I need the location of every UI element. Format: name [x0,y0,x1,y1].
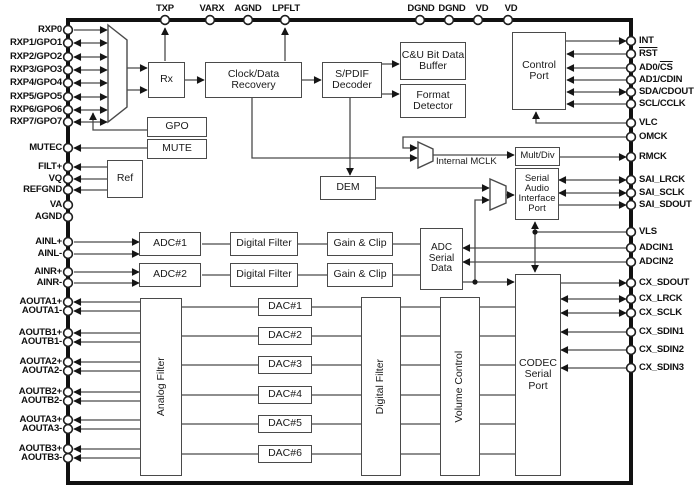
pin-label-agnd-top: AGND [234,4,261,14]
block-serial-audio-interface-port: Serial Audio Interface Port [515,168,559,220]
pin-label-sai-sclk: SAI_SCLK [639,188,684,198]
block-dac5: DAC#5 [258,415,312,433]
pin-label-ainr-minus: AINR- [2,278,62,288]
pin-label-vlc: VLC [639,118,657,128]
dac-digital-filter-label: Digital Filter [375,359,386,414]
pin-label-agnd-left: AGND [2,212,62,222]
block-control-port: Control Port [512,32,566,110]
block-diagram: Rx Clock/Data Recovery S/PDIF Decoder C&… [0,0,700,489]
pin-label-cx-sdin3: CX_SDIN3 [639,363,684,373]
block-dac6: DAC#6 [258,445,312,463]
pin-label-va: VA [2,200,62,210]
pin-label-omck: OMCK [639,132,667,142]
pin-label-rst: RST [639,49,657,59]
pin-label-rxp0: RXP0 [2,25,62,35]
block-dac1: DAC#1 [258,298,312,316]
pin-label-rxp7: RXP7/GPO7 [2,117,62,127]
pin-label-aoutb1-minus: AOUTB1- [2,337,62,347]
pin-label-rxp1: RXP1/GPO1 [2,38,62,48]
pin-label-ainl-plus: AINL+ [2,237,62,247]
pin-label-vls: VLS [639,227,657,237]
pin-label-int: INT [639,36,654,46]
pin-label-vd2: VD [505,4,518,14]
pin-label-mutec: MUTEC [2,143,62,153]
pin-label-cx-lrck: CX_LRCK [639,294,682,304]
pin-label-rxp2: RXP2/GPO2 [2,52,62,62]
volume-control-label: Volume Control [454,351,465,423]
pin-label-aoutb2-minus: AOUTB2- [2,396,62,406]
cs-overline: CS [660,62,673,73]
block-dac-digital-filter: Digital Filter [361,297,401,476]
pin-label-scl-cclk: SCL/CCLK [639,99,685,109]
pin-label-ad0-cs: AD0/CS [639,63,673,73]
pin-label-vd1: VD [476,4,489,14]
pin-label-cx-sdout: CX_SDOUT [639,278,689,288]
pin-label-cx-sdin1: CX_SDIN1 [639,327,684,337]
pin-label-aoutb3-minus: AOUTB3- [2,453,62,463]
block-cu-bit-data-buffer: C&U Bit Data Buffer [400,42,466,80]
pin-label-rxp4: RXP4/GPO4 [2,78,62,88]
block-gpo: GPO [147,117,207,137]
ad0-text: AD0/ [639,62,660,73]
pin-label-adcin2: ADCIN2 [639,257,673,267]
block-gain-clip-2: Gain & Clip [327,263,393,287]
pin-label-rxp3: RXP3/GPO3 [2,65,62,75]
rxp-mux [108,25,127,122]
pin-label-cx-sclk: CX_SCLK [639,308,682,318]
rst-overline: RST [639,48,657,59]
pin-label-lpflt: LPFLT [272,4,300,14]
pin-label-refgnd: REFGND [2,185,62,195]
pin-label-txp: TXP [156,4,174,14]
pin-label-dgnd1: DGND [407,4,434,14]
block-dem: DEM [320,176,376,200]
pin-label-ainl-minus: AINL- [2,249,62,259]
pin-label-ad1-cdin: AD1/CDIN [639,75,682,85]
block-dac4: DAC#4 [258,386,312,404]
pin-label-ainr-plus: AINR+ [2,267,62,277]
block-digital-filter-adc1: Digital Filter [230,232,298,256]
pin-label-rxp5: RXP5/GPO5 [2,92,62,102]
block-volume-control: Volume Control [440,297,480,476]
block-mute: MUTE [147,139,207,159]
block-spdif-decoder: S/PDIF Decoder [322,62,382,98]
pin-label-sai-lrck: SAI_LRCK [639,175,685,185]
analog-filter-label: Analog Filter [155,358,166,417]
pin-label-sai-sdout: SAI_SDOUT [639,200,692,210]
label-internal-mclk: Internal MCLK [436,157,516,167]
pin-label-sda-cdout: SDA/CDOUT [639,87,694,97]
pin-label-filt: FILT+ [2,162,62,172]
pin-label-rxp6: RXP6/GPO6 [2,105,62,115]
block-adc2: ADC#2 [139,263,201,287]
block-analog-filter: Analog Filter [140,298,182,476]
pin-label-varx: VARX [200,4,225,14]
block-mult-div: Mult/Div [515,147,560,166]
pin-label-aouta3-minus: AOUTA3- [2,424,62,434]
block-rx: Rx [148,62,185,98]
block-clock-data-recovery: Clock/Data Recovery [205,62,302,98]
block-codec-serial-port: CODEC Serial Port [515,274,561,476]
mclk-mux [418,142,433,168]
sai-mux [490,179,506,210]
block-format-detector: Format Detector [400,84,466,118]
pin-label-aouta2-minus: AOUTA2- [2,366,62,376]
pin-label-rmck: RMCK [639,152,667,162]
pin-label-cx-sdin2: CX_SDIN2 [639,345,684,355]
block-digital-filter-adc2: Digital Filter [230,263,298,287]
pin-label-dgnd2: DGND [438,4,465,14]
block-adc1: ADC#1 [139,232,201,256]
pin-label-adcin1: ADCIN1 [639,243,673,253]
block-gain-clip-1: Gain & Clip [327,232,393,256]
block-dac2: DAC#2 [258,327,312,345]
pin-label-aouta1-minus: AOUTA1- [2,306,62,316]
block-ref: Ref [107,160,143,198]
block-dac3: DAC#3 [258,356,312,374]
block-adc-serial-data: ADC Serial Data [420,228,463,290]
pin-label-vq: VQ [2,174,62,184]
